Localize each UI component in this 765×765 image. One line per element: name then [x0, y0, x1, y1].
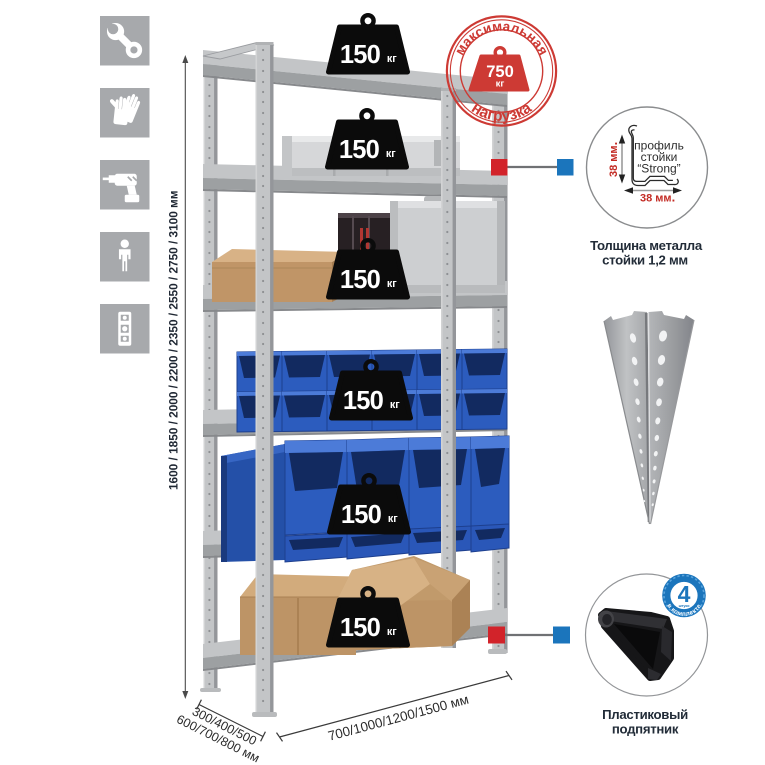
svg-text:кг: кг: [390, 399, 400, 411]
svg-text:150: 150: [340, 614, 381, 642]
svg-text:максимальная: максимальная: [452, 19, 551, 58]
svg-text:кг: кг: [387, 626, 397, 638]
svg-text:стойки 1,2 мм: стойки 1,2 мм: [602, 253, 688, 268]
svg-text:штуки: штуки: [679, 604, 690, 608]
svg-text:кг: кг: [387, 278, 397, 290]
svg-text:кг: кг: [388, 513, 398, 525]
svg-text:38 мм.: 38 мм.: [640, 190, 675, 205]
svg-text:38 мм.: 38 мм.: [605, 142, 620, 177]
svg-text:кг: кг: [386, 148, 396, 160]
svg-text:150: 150: [340, 41, 381, 69]
svg-text:150: 150: [339, 136, 380, 164]
svg-text:150: 150: [343, 387, 384, 415]
svg-text:150: 150: [340, 266, 381, 294]
svg-text:Толщина металла: Толщина металла: [590, 238, 703, 253]
svg-text:кг: кг: [387, 53, 397, 65]
svg-text:“Strong”: “Strong”: [637, 162, 680, 176]
svg-text:Пластиковый: Пластиковый: [602, 707, 688, 722]
svg-text:подпятник: подпятник: [612, 722, 679, 737]
svg-text:кг: кг: [496, 79, 505, 90]
svg-text:1600 / 1850 / 2000 / 2200 / 23: 1600 / 1850 / 2000 / 2200 / 2350 / 2550 …: [167, 190, 181, 490]
svg-text:700/1000/1200/1500 мм: 700/1000/1200/1500 мм: [326, 692, 470, 744]
svg-text:150: 150: [341, 501, 382, 529]
